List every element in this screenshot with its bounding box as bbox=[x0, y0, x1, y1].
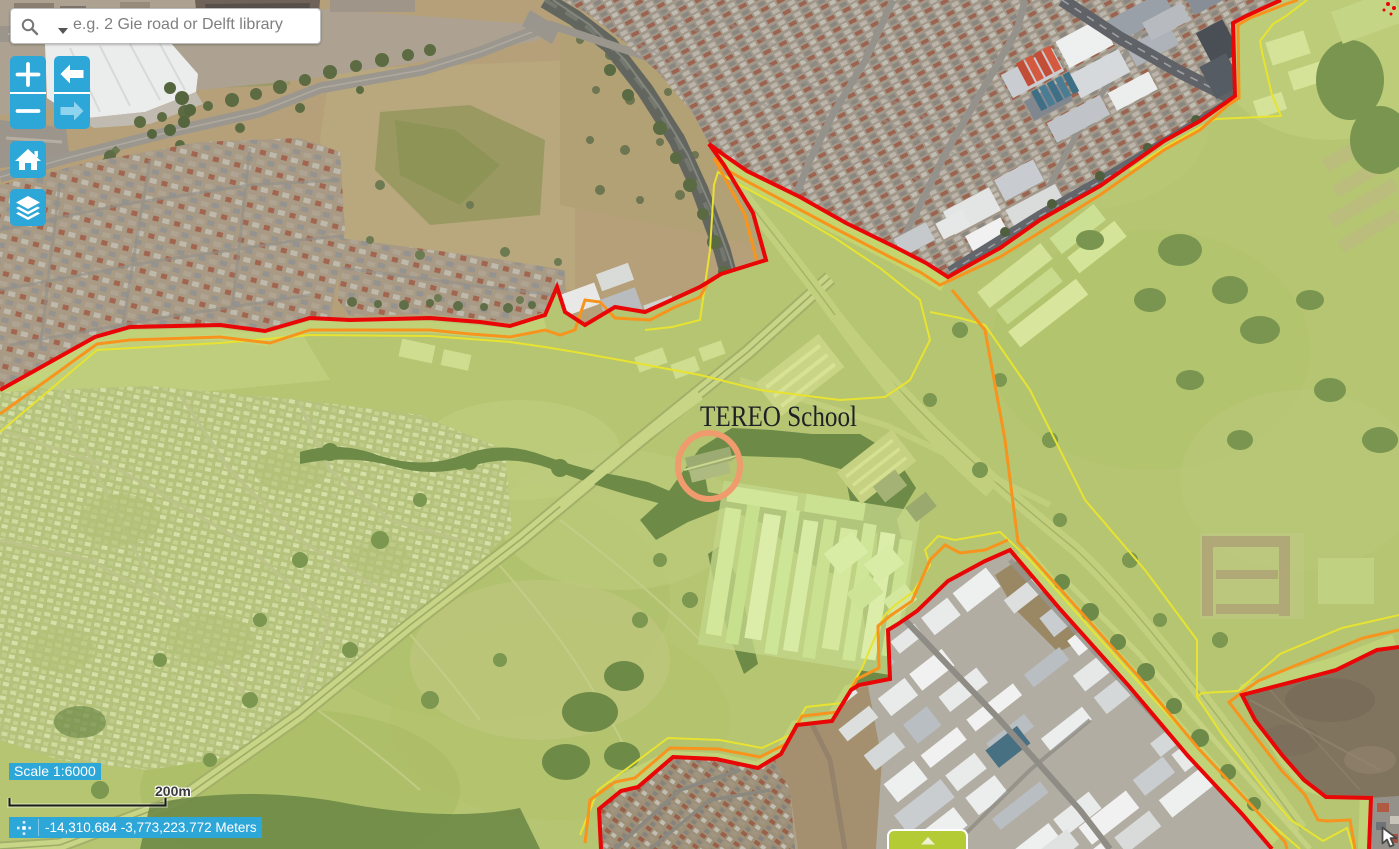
svg-text:TEREO School: TEREO School bbox=[700, 400, 857, 433]
